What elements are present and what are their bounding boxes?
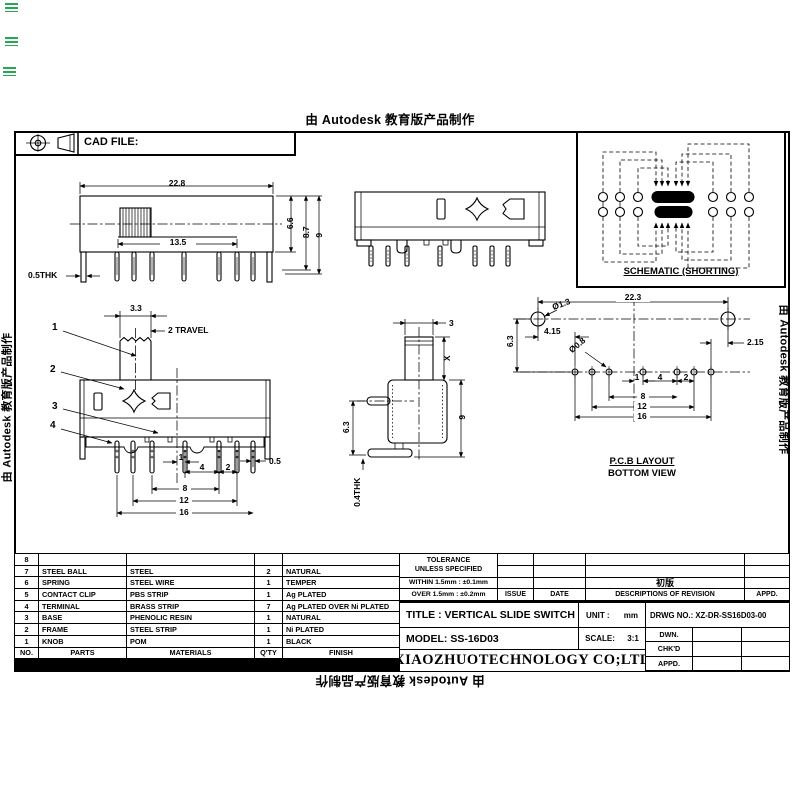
scale-value: 3:1 bbox=[627, 634, 639, 643]
revision-cell bbox=[498, 554, 533, 565]
header-qty: Q'TY bbox=[255, 648, 282, 659]
cell-materials: STEEL STRIP bbox=[127, 624, 254, 635]
cell-qty: 1 bbox=[255, 577, 282, 588]
revision-cell bbox=[498, 578, 533, 589]
revision-cell bbox=[534, 554, 585, 565]
dim-front-thickness: 0.5THK bbox=[28, 271, 57, 280]
dim-detail-pitch-4: 4 bbox=[194, 463, 210, 472]
cell-qty: 1 bbox=[255, 624, 282, 635]
dwn-label: DWN. bbox=[646, 628, 692, 641]
schematic-label: SCHEMATIC (SHORTING) bbox=[611, 267, 751, 277]
dim-front-travel-span: 13.5 bbox=[160, 238, 196, 247]
dim-side-thickness: 0.4THK bbox=[353, 472, 362, 512]
dim-pcb-span-16: 16 bbox=[634, 412, 650, 421]
dim-pcb-offset-right: 2.15 bbox=[747, 338, 764, 347]
dim-side-total-height: 9 bbox=[458, 407, 467, 427]
cell-materials: PHENOLIC RESIN bbox=[127, 612, 254, 623]
model-box: MODEL: SS-16D03 bbox=[399, 627, 579, 650]
unit-box: UNIT : mm bbox=[578, 602, 646, 628]
tolerance-title-cell: TOLERANCE UNLESS SPECIFIED bbox=[400, 554, 497, 577]
cell-parts: KNOB bbox=[39, 636, 126, 647]
dim-pcb-offset-left: 4.15 bbox=[544, 327, 561, 336]
dim-pcb-pitch-1: 1 bbox=[632, 373, 642, 382]
pcb-layout-title: P.C.B LAYOUT bbox=[592, 457, 692, 467]
cell-materials bbox=[127, 554, 254, 565]
cell-finish: BLACK bbox=[283, 636, 399, 647]
dim-pcb-row-gap: 6.3 bbox=[506, 329, 515, 353]
cell-no: 2 bbox=[15, 624, 38, 635]
watermark-left: 由 Autodesk 教育版产品制作 bbox=[3, 328, 14, 488]
callout-1: 1 bbox=[52, 323, 58, 333]
cell-finish: NATURAL bbox=[283, 612, 399, 623]
callout-2: 2 bbox=[50, 365, 56, 375]
cell-finish: Ag PLATED OVER Ni PLATED bbox=[283, 601, 399, 612]
header-materials: MATERIALS bbox=[127, 648, 254, 659]
cell-materials: STEEL WIRE bbox=[127, 577, 254, 588]
callout-4: 4 bbox=[50, 421, 56, 431]
cell-no: 3 bbox=[15, 612, 38, 623]
revision-cell bbox=[586, 554, 744, 565]
watermark-bottom: 由 Autodesk 教育版产品制作 bbox=[300, 674, 500, 687]
watermark-top: 由 Autodesk 教育版产品制作 bbox=[290, 114, 490, 127]
cell-qty: 1 bbox=[255, 612, 282, 623]
cell-materials: STEEL bbox=[127, 566, 254, 577]
tolerance-over: OVER 1.5mm : ±0.2mm bbox=[400, 589, 497, 600]
dim-front-width: 22.8 bbox=[160, 179, 194, 188]
cell-no: 7 bbox=[15, 566, 38, 577]
cell-materials: BRASS STRIP bbox=[127, 601, 254, 612]
cell-qty: 1 bbox=[255, 589, 282, 600]
cell-no: 5 bbox=[15, 589, 38, 600]
revision-cell bbox=[745, 578, 789, 589]
signoff-cell bbox=[742, 628, 789, 641]
dim-pcb-width: 22.3 bbox=[616, 293, 650, 302]
unit-value: mm bbox=[624, 611, 638, 620]
signoff-cell bbox=[742, 657, 789, 670]
drawing-sheet: 由 Autodesk 教育版产品制作 由 Autodesk 教育版产品制作 由 … bbox=[0, 0, 800, 800]
revision-cell bbox=[534, 578, 585, 589]
scale-box: SCALE: 3:1 bbox=[578, 627, 646, 650]
cad-file-box bbox=[14, 131, 296, 156]
revision-appd-header: APPD. bbox=[745, 589, 789, 600]
appd-label: APPD. bbox=[646, 657, 692, 670]
tolerance-title: TOLERANCE bbox=[427, 556, 470, 565]
unit-label: UNIT : bbox=[586, 611, 610, 620]
cell-parts: TERMINAL bbox=[39, 601, 126, 612]
signoff-cell bbox=[693, 628, 741, 641]
revision-descriptions-header: DESCRIPTIONS OF REVISION bbox=[586, 589, 744, 600]
dim-detail-span-12: 12 bbox=[176, 496, 192, 505]
dim-detail-travel: 2 TRAVEL bbox=[168, 326, 208, 335]
dim-front-shoulder-height: 8.7 bbox=[302, 220, 311, 244]
dim-side-knob-height: X bbox=[443, 348, 452, 368]
dim-detail-span-16: 16 bbox=[176, 508, 192, 517]
revision-cell bbox=[745, 566, 789, 577]
cell-no: 4 bbox=[15, 601, 38, 612]
dim-front-body-height: 6.6 bbox=[286, 211, 295, 235]
signoff-block: DWN. CHK'D APPD. bbox=[645, 627, 790, 672]
cad-file-label: CAD FILE: bbox=[84, 137, 138, 148]
title-box: TITLE : VERTICAL SLIDE SWITCH bbox=[399, 602, 579, 628]
cell-parts: CONTACT CLIP bbox=[39, 589, 126, 600]
cell-finish: TEMPER bbox=[283, 577, 399, 588]
callout-3: 3 bbox=[52, 402, 58, 412]
cell-parts bbox=[39, 554, 126, 565]
tolerance-block: TOLERANCE UNLESS SPECIFIED WITHIN 1.5mm … bbox=[399, 553, 498, 602]
tolerance-subtitle: UNLESS SPECIFIED bbox=[415, 565, 482, 574]
cell-materials: PBS STRIP bbox=[127, 589, 254, 600]
company-box: XIAOZHUOTECHNOLOGY CO;LTD bbox=[399, 649, 646, 672]
dim-pcb-pitch-4: 4 bbox=[654, 373, 666, 382]
cell-finish: NATURAL bbox=[283, 566, 399, 577]
dim-detail-span-8: 8 bbox=[179, 484, 191, 493]
revision-block: 初版 ISSUE DATE DESCRIPTIONS OF REVISION A… bbox=[497, 553, 790, 602]
cell-materials: POM bbox=[127, 636, 254, 647]
cell-finish bbox=[283, 554, 399, 565]
cell-parts: BASE bbox=[39, 612, 126, 623]
cell-finish: Ni PLATED bbox=[283, 624, 399, 635]
cell-no: 1 bbox=[15, 636, 38, 647]
scale-label: SCALE: bbox=[585, 634, 615, 643]
cell-no: 8 bbox=[15, 554, 38, 565]
cell-qty bbox=[255, 554, 282, 565]
cell-parts: STEEL BALL bbox=[39, 566, 126, 577]
chkd-label: CHK'D bbox=[646, 642, 692, 655]
revision-cell bbox=[745, 554, 789, 565]
revision-issue-header: ISSUE bbox=[498, 589, 533, 600]
cell-qty: 7 bbox=[255, 601, 282, 612]
header-parts: PARTS bbox=[39, 648, 126, 659]
signoff-cell bbox=[742, 642, 789, 655]
dim-detail-pitch-1: 1 bbox=[175, 453, 187, 462]
pcb-layout-subtitle: BOTTOM VIEW bbox=[592, 469, 692, 479]
revision-cell bbox=[586, 566, 744, 577]
dim-front-total-height: 9 bbox=[315, 223, 324, 247]
cell-parts: SPRING bbox=[39, 577, 126, 588]
dim-detail-pin-width: 0.5 bbox=[269, 457, 281, 466]
dim-pcb-span-8: 8 bbox=[637, 392, 649, 401]
revision-cell bbox=[534, 566, 585, 577]
dim-pcb-pitch-2: 2 bbox=[680, 373, 692, 382]
schematic-box bbox=[576, 131, 786, 288]
cell-finish: Ag PLATED bbox=[283, 589, 399, 600]
header-finish: FINISH bbox=[283, 648, 399, 659]
signoff-cell bbox=[693, 642, 741, 655]
signoff-cell bbox=[693, 657, 741, 670]
parts-table: 8 7STEEL BALLSTEEL2NATURAL 6SPRINGSTEEL … bbox=[14, 553, 400, 672]
tolerance-within: WITHIN 1.5mm : ±0.1mm bbox=[400, 578, 497, 589]
revision-cell bbox=[498, 566, 533, 577]
dim-side-knob-width: 3 bbox=[449, 319, 454, 328]
cell-qty: 2 bbox=[255, 566, 282, 577]
revision-entry: 初版 bbox=[586, 578, 744, 589]
cell-qty: 1 bbox=[255, 636, 282, 647]
revision-date-header: DATE bbox=[534, 589, 585, 600]
cell-no: 6 bbox=[15, 577, 38, 588]
header-no: NO. bbox=[15, 648, 38, 659]
cell-parts: FRAME bbox=[39, 624, 126, 635]
dim-detail-pitch-2: 2 bbox=[220, 463, 236, 472]
dim-pcb-span-12: 12 bbox=[634, 402, 650, 411]
drwg-no-box: DRWG NO.: XZ-DR-SS16D03-00 bbox=[645, 602, 790, 628]
dim-detail-knob-width: 3.3 bbox=[118, 304, 154, 313]
watermark-right: 由 Autodesk 教育版产品制作 bbox=[778, 300, 789, 460]
dim-side-pin-offset: 6.3 bbox=[342, 415, 351, 439]
